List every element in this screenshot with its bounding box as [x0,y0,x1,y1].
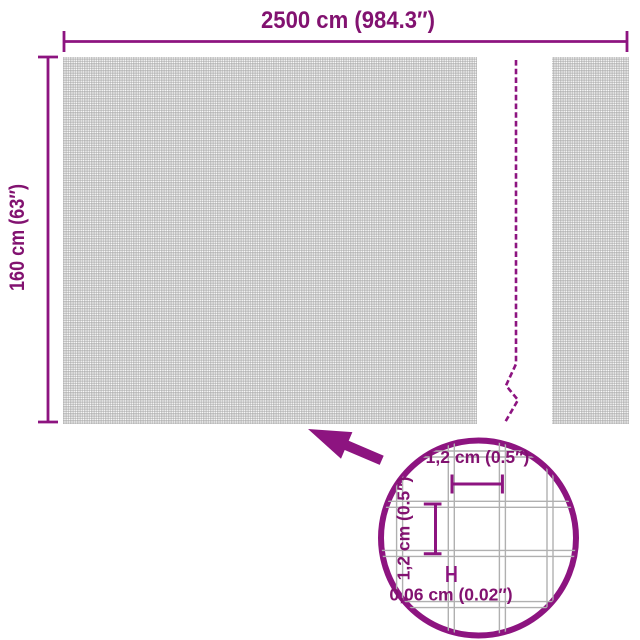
svg-text:2500 cm (984.3″): 2500 cm (984.3″) [261,7,435,34]
svg-text:1,2 cm (0.5″): 1,2 cm (0.5″) [426,447,530,467]
svg-text:1,2 cm (0.5″): 1,2 cm (0.5″) [394,477,414,581]
svg-text:0,06 cm (0.02″): 0,06 cm (0.02″) [389,585,512,605]
svg-text:160 cm (63″): 160 cm (63″) [5,184,29,291]
